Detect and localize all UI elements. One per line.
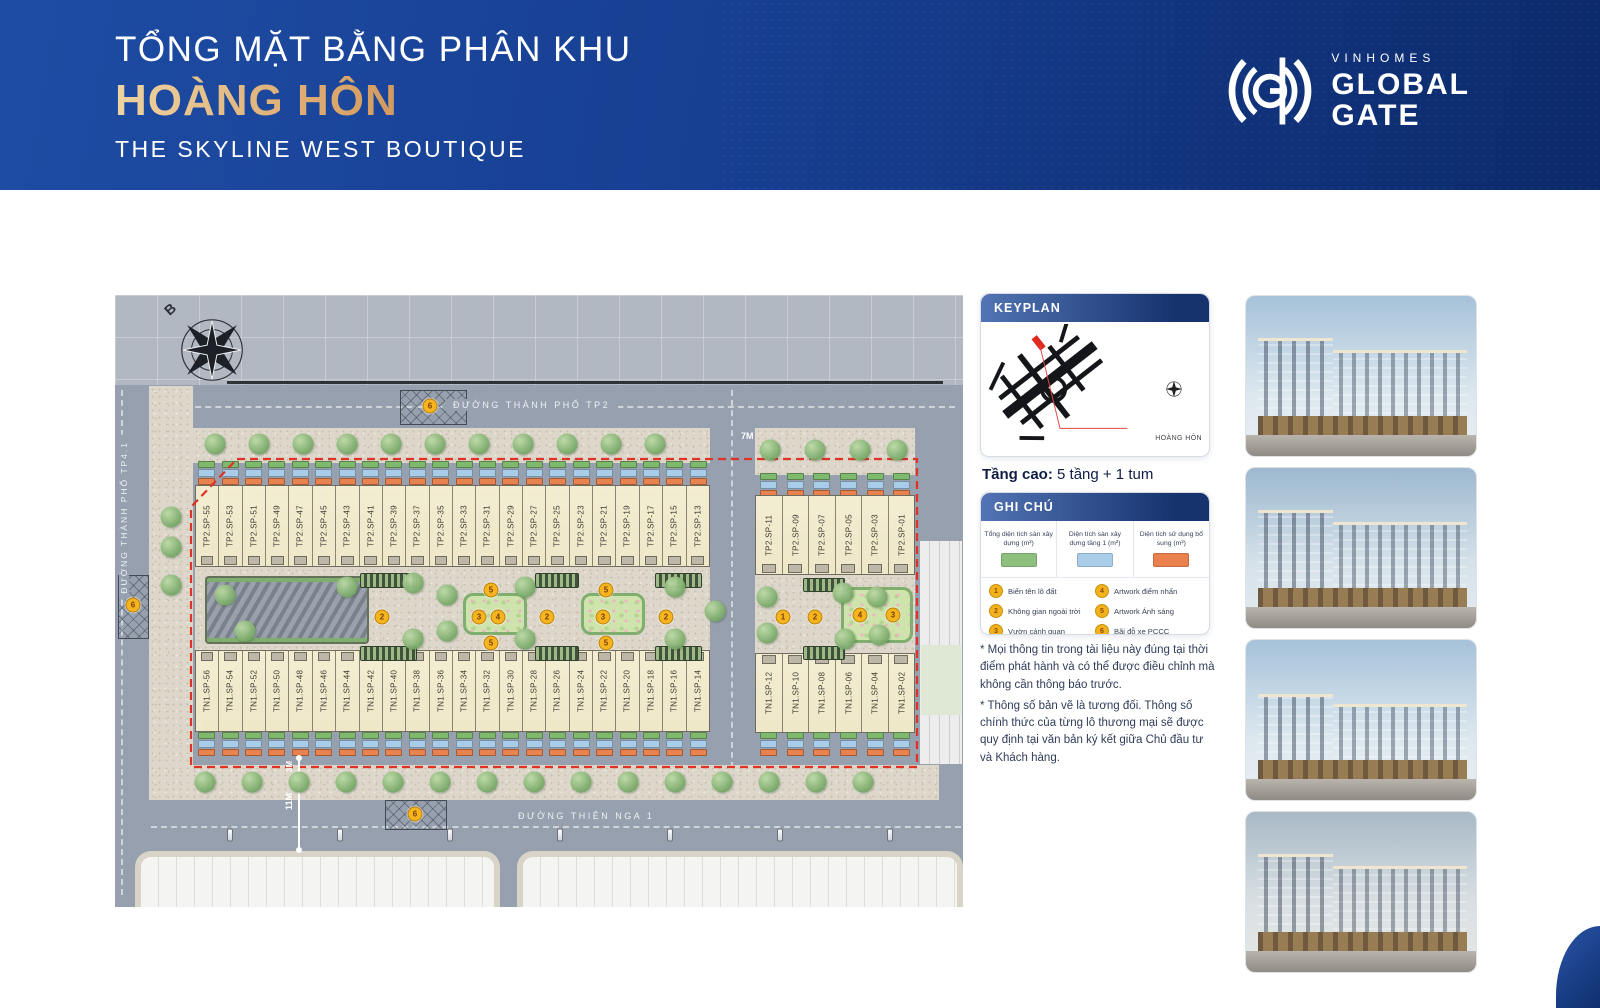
lot-label: TN1.SP-32 xyxy=(476,651,498,731)
lot-cell: TN1.SP-06 xyxy=(836,654,863,732)
lot-info-chip-stack xyxy=(640,732,663,757)
lot-label: TP2.SP-17 xyxy=(640,486,662,566)
lot-info-chip xyxy=(362,469,379,477)
legend-swatch-label: Diện tích sàn xây dựng tầng 1 (m²) xyxy=(1060,531,1129,549)
lot-cell: TN1.SP-56 xyxy=(196,651,219,731)
lot-info-chip xyxy=(456,749,473,757)
lot-info-chip xyxy=(245,732,262,740)
sidewalk-strip xyxy=(755,428,915,475)
lot-info-chip xyxy=(813,473,830,481)
brand-global: GLOBAL xyxy=(1331,69,1470,101)
lot-info-chip xyxy=(456,469,473,477)
lot-info-chip xyxy=(760,732,777,740)
lot-row-bottom-right: TN1.SP-12TN1.SP-10TN1.SP-08TN1.SP-06TN1.… xyxy=(755,653,915,733)
lot-info-chip xyxy=(596,740,613,748)
lot-info-chip-stack xyxy=(687,461,710,486)
lot-row-top-left: TP2.SP-55TP2.SP-53TP2.SP-51TP2.SP-49TP2.… xyxy=(195,485,710,567)
future-lot-block xyxy=(517,851,963,907)
lot-label: TP2.SP-23 xyxy=(570,486,592,566)
lot-label: TP2.SP-11 xyxy=(756,496,782,574)
street-lamp-icon xyxy=(227,829,233,842)
lot-info-chip xyxy=(409,740,426,748)
lot-info-chip xyxy=(813,732,830,740)
title-block: TỔNG MẶT BẰNG PHÂN KHU HOÀNG HÔN THE SKY… xyxy=(115,30,632,163)
lot-info-chip xyxy=(893,749,910,757)
lot-cell: TN1.SP-30 xyxy=(500,651,523,731)
lot-label: TN1.SP-02 xyxy=(889,654,915,732)
lot-label: TP2.SP-35 xyxy=(430,486,452,566)
lot-info-chip xyxy=(432,740,449,748)
lot-info-chip xyxy=(760,481,777,489)
lot-cell: TN1.SP-22 xyxy=(593,651,616,731)
lot-cell: TP2.SP-15 xyxy=(663,486,686,566)
lot-info-chip xyxy=(690,749,707,757)
lot-info-chip-stack xyxy=(663,461,686,486)
lot-info-chip-stack xyxy=(546,732,569,757)
lot-label: TN1.SP-20 xyxy=(616,651,638,731)
lot-info-chip xyxy=(292,461,309,469)
lot-label: TN1.SP-16 xyxy=(663,651,685,731)
lot-cell: TP2.SP-31 xyxy=(476,486,499,566)
legend-item: 5Artwork Ánh sáng xyxy=(1095,604,1201,618)
lot-cell: TP2.SP-27 xyxy=(523,486,546,566)
lot-info-chip xyxy=(339,732,356,740)
legend-item-label: Artwork Ánh sáng xyxy=(1114,607,1174,616)
legend-items: 1Biển tên lô đất2Không gian ngoài trời3V… xyxy=(981,578,1209,635)
lot-info-chip xyxy=(502,461,519,469)
lot-info-chip xyxy=(549,469,566,477)
lot-info-chip xyxy=(385,469,402,477)
lot-cell: TN1.SP-36 xyxy=(430,651,453,731)
lot-info-chip xyxy=(362,732,379,740)
legend-item-label: Bãi đỗ xe PCCC xyxy=(1114,627,1169,636)
lot-cell: TP2.SP-55 xyxy=(196,486,219,566)
lot-info-chip xyxy=(315,732,332,740)
lot-info-chip xyxy=(292,469,309,477)
lot-info-chip xyxy=(787,473,804,481)
legend-title: GHI CHÚ xyxy=(994,500,1054,514)
lot-info-chip xyxy=(292,732,309,740)
lot-info-chip xyxy=(573,740,590,748)
lot-label: TN1.SP-28 xyxy=(523,651,545,731)
lot-info-chip xyxy=(245,749,262,757)
lot-info-chip xyxy=(893,473,910,481)
lot-label: TN1.SP-14 xyxy=(687,651,709,731)
lot-info-chip xyxy=(526,461,543,469)
lot-info-chip-stack xyxy=(265,732,288,757)
brand-vinhomes: VINHOMES xyxy=(1331,51,1470,65)
lot-info-chip xyxy=(315,469,332,477)
lot-info-chip xyxy=(760,740,777,748)
lot-info-chip-stack xyxy=(862,473,889,498)
lot-info-chip-stack xyxy=(755,732,782,757)
corner-decoration xyxy=(1556,926,1600,1008)
lot-info-chip-stack xyxy=(616,461,639,486)
lot-cell: TP2.SP-17 xyxy=(640,486,663,566)
lot-info-chip xyxy=(893,740,910,748)
lot-info-chip xyxy=(760,749,777,757)
dimension-11m: 11M xyxy=(284,793,294,810)
lot-info-chip xyxy=(643,461,660,469)
lot-info-chip xyxy=(573,461,590,469)
lot-cell: TP2.SP-11 xyxy=(756,496,783,574)
lot-info-chip xyxy=(893,732,910,740)
lot-info-chip xyxy=(620,740,637,748)
artwork-plaza xyxy=(205,576,369,644)
lot-cell: TN1.SP-04 xyxy=(862,654,889,732)
lot-cell: TN1.SP-32 xyxy=(476,651,499,731)
lot-label: TN1.SP-18 xyxy=(640,651,662,731)
lot-cell: TP2.SP-33 xyxy=(453,486,476,566)
lot-info-chip xyxy=(787,749,804,757)
lot-info-chip xyxy=(456,461,473,469)
lot-info-chips-row xyxy=(195,733,710,755)
legend-item-label: Biển tên lô đất xyxy=(1008,587,1057,596)
legend-swatch-label: Tổng diện tích sàn xây dựng (m²) xyxy=(984,531,1053,549)
lot-info-chip xyxy=(690,732,707,740)
lot-info-chip-stack xyxy=(687,732,710,757)
arcade-element xyxy=(1258,760,1467,781)
lot-label: TP2.SP-03 xyxy=(862,496,888,574)
dimension-line xyxy=(298,758,300,850)
lot-info-chip xyxy=(479,732,496,740)
lot-cell: TN1.SP-44 xyxy=(336,651,359,731)
lot-info-chip xyxy=(549,740,566,748)
lot-cell: TN1.SP-12 xyxy=(756,654,783,732)
lot-info-chip xyxy=(666,732,683,740)
lot-cell: TN1.SP-34 xyxy=(453,651,476,731)
lot-label: TP2.SP-41 xyxy=(360,486,382,566)
lot-info-chip-stack xyxy=(570,732,593,757)
lot-cell: TP2.SP-07 xyxy=(809,496,836,574)
keyplan-map: HOÀNG HÔN xyxy=(981,322,1209,456)
lot-info-chip xyxy=(787,481,804,489)
lot-row-top-right: TP2.SP-11TP2.SP-09TP2.SP-07TP2.SP-05TP2.… xyxy=(755,495,915,575)
lot-info-chip-stack xyxy=(335,732,358,757)
lot-info-chip-stack xyxy=(782,732,809,757)
lot-info-chip xyxy=(596,469,613,477)
lot-label: TP2.SP-51 xyxy=(243,486,265,566)
lot-info-chip xyxy=(867,732,884,740)
lot-cell: TP2.SP-41 xyxy=(360,486,383,566)
lot-cell: TP2.SP-03 xyxy=(862,496,889,574)
lot-info-chip xyxy=(385,740,402,748)
lot-info-chip xyxy=(409,749,426,757)
lot-info-chip xyxy=(502,740,519,748)
lot-cell: TN1.SP-48 xyxy=(289,651,312,731)
legend-item-label: Không gian ngoài trời xyxy=(1008,607,1081,616)
lot-info-chip xyxy=(502,732,519,740)
page-title: TỔNG MẶT BẰNG PHÂN KHU xyxy=(115,30,632,70)
sidewalk-strip xyxy=(193,428,710,463)
lot-label: TP2.SP-21 xyxy=(593,486,615,566)
subzone-title: HOÀNG HÔN xyxy=(115,76,632,126)
lot-label: TN1.SP-42 xyxy=(360,651,382,731)
lot-info-chip-stack xyxy=(808,473,835,498)
legend-item: 6Bãi đỗ xe PCCC xyxy=(1095,624,1201,635)
road-element xyxy=(1246,435,1476,456)
lot-info-chip-stack xyxy=(452,732,475,757)
lot-label: TP2.SP-49 xyxy=(266,486,288,566)
lot-info-chip xyxy=(479,461,496,469)
fire-parking-area xyxy=(385,800,447,830)
lot-info-chip xyxy=(813,749,830,757)
lot-info-chip xyxy=(479,469,496,477)
keyplan-map-graphic xyxy=(985,324,1187,450)
lot-info-chip xyxy=(432,469,449,477)
lot-cell: TN1.SP-50 xyxy=(266,651,289,731)
globalgate-logo-icon xyxy=(1227,48,1313,134)
lot-label: TN1.SP-52 xyxy=(243,651,265,731)
lot-info-chip-stack xyxy=(359,732,382,757)
project-subtitle: THE SKYLINE WEST BOUTIQUE xyxy=(115,136,632,163)
street-lamp-icon xyxy=(557,829,563,842)
building-render-2 xyxy=(1245,467,1477,629)
lot-cell: TP2.SP-47 xyxy=(289,486,312,566)
legend-item-number: 2 xyxy=(989,604,1003,618)
arcade-element xyxy=(1258,416,1467,437)
lot-cell: TP2.SP-45 xyxy=(313,486,336,566)
lot-label: TP2.SP-45 xyxy=(313,486,335,566)
legend-swatch-color xyxy=(1001,553,1037,567)
keyplan-card: KEYPLAN xyxy=(980,293,1210,457)
lot-info-chip-stack xyxy=(289,732,312,757)
lot-info-chip xyxy=(222,740,239,748)
legend-column: 1Biển tên lô đất2Không gian ngoài trời3V… xyxy=(989,584,1095,635)
lot-label: TN1.SP-48 xyxy=(289,651,311,731)
lot-label: TP2.SP-29 xyxy=(500,486,522,566)
lot-info-chip xyxy=(222,461,239,469)
lot-info-chip xyxy=(198,740,215,748)
legend-swatch-label: Diện tích sử dụng bổ sung (m²) xyxy=(1137,531,1206,549)
lot-info-chip xyxy=(643,740,660,748)
lot-label: TN1.SP-10 xyxy=(783,654,809,732)
lot-info-chip xyxy=(198,732,215,740)
lot-info-chip xyxy=(690,740,707,748)
lot-info-chip-stack xyxy=(546,461,569,486)
keyplan-compass-icon xyxy=(1165,380,1183,398)
street-lamp-icon xyxy=(667,829,673,842)
lot-cell: TN1.SP-18 xyxy=(640,651,663,731)
lot-label: TN1.SP-46 xyxy=(313,651,335,731)
legend-column: 4Artwork điểm nhấn5Artwork Ánh sáng6Bãi … xyxy=(1095,584,1201,635)
lot-info-chip-stack xyxy=(312,461,335,486)
legend-item: 3Vườn cảnh quan xyxy=(989,624,1095,635)
lot-label: TP2.SP-37 xyxy=(406,486,428,566)
lot-cell: TN1.SP-28 xyxy=(523,651,546,731)
lot-info-chip-stack xyxy=(663,732,686,757)
lot-cell: TN1.SP-52 xyxy=(243,651,266,731)
lot-info-chip xyxy=(666,749,683,757)
lot-cell: TN1.SP-38 xyxy=(406,651,429,731)
lot-info-chip xyxy=(409,732,426,740)
lot-info-chip xyxy=(867,481,884,489)
lot-info-chip xyxy=(690,461,707,469)
sidewalk-strip xyxy=(149,765,939,800)
lot-label: TN1.SP-24 xyxy=(570,651,592,731)
lot-info-chip xyxy=(787,732,804,740)
lot-info-chip xyxy=(432,732,449,740)
lot-info-chip-stack xyxy=(499,732,522,757)
lot-info-chip xyxy=(867,473,884,481)
lot-cell: TN1.SP-54 xyxy=(219,651,242,731)
lot-info-chip-stack xyxy=(888,473,915,498)
lot-info-chip xyxy=(643,732,660,740)
dimension-3m: 3M xyxy=(285,761,294,772)
legend-item-label: Artwork điểm nhấn xyxy=(1114,587,1177,596)
lot-info-chip-stack xyxy=(593,732,616,757)
floor-count-value: 5 tầng + 1 tum xyxy=(1053,466,1153,483)
lot-label: TN1.SP-08 xyxy=(809,654,835,732)
lot-label: TN1.SP-06 xyxy=(836,654,862,732)
lot-info-chip xyxy=(198,469,215,477)
lot-info-chip xyxy=(690,469,707,477)
lot-info-chip-stack xyxy=(406,461,429,486)
lot-label: TP2.SP-27 xyxy=(523,486,545,566)
lot-cell: TN1.SP-10 xyxy=(783,654,810,732)
lot-label: TP2.SP-09 xyxy=(783,496,809,574)
lot-info-chip xyxy=(362,749,379,757)
future-lot-block xyxy=(135,851,500,907)
lot-info-chip xyxy=(479,740,496,748)
lot-info-chip xyxy=(222,732,239,740)
lot-cell: TN1.SP-42 xyxy=(360,651,383,731)
lot-info-chip xyxy=(526,749,543,757)
lot-info-chip-stack xyxy=(242,461,265,486)
lot-cell: TN1.SP-14 xyxy=(687,651,709,731)
lot-label: TN1.SP-56 xyxy=(196,651,218,731)
lot-info-chip xyxy=(362,461,379,469)
legend-item-number: 6 xyxy=(1095,624,1109,635)
keyplan-callout-label: HOÀNG HÔN xyxy=(1155,435,1202,442)
lot-info-chip xyxy=(245,461,262,469)
lot-label: TN1.SP-22 xyxy=(593,651,615,731)
lot-info-chip xyxy=(573,749,590,757)
lot-info-chip xyxy=(813,740,830,748)
lot-info-chip-stack xyxy=(218,461,241,486)
lot-info-chip xyxy=(432,461,449,469)
legend-item-number: 4 xyxy=(1095,584,1109,598)
street-label-left: ĐƯỜNG THÀNH PHỐ TP4.1 xyxy=(119,435,129,600)
lot-info-chip xyxy=(643,749,660,757)
lot-cell: TN1.SP-16 xyxy=(663,651,686,731)
arcade-element xyxy=(1258,932,1467,953)
lot-info-chip xyxy=(385,732,402,740)
legend-item-number: 5 xyxy=(1095,604,1109,618)
lot-info-chip-stack xyxy=(382,461,405,486)
lot-info-chip xyxy=(813,481,830,489)
road-element xyxy=(1246,951,1476,972)
legend-item-number: 3 xyxy=(989,624,1003,635)
sidewalk-strip xyxy=(149,386,193,766)
legend-swatch-row: Tổng diện tích sàn xây dựng (m²)Diện tíc… xyxy=(981,521,1209,578)
lot-info-chip-stack xyxy=(523,732,546,757)
lot-info-chips-row xyxy=(755,734,915,754)
lot-label: TP2.SP-31 xyxy=(476,486,498,566)
lot-info-chip xyxy=(292,740,309,748)
lot-label: TP2.SP-07 xyxy=(809,496,835,574)
lot-info-chip xyxy=(409,469,426,477)
street-lamp-icon xyxy=(887,829,893,842)
lot-label: TP2.SP-01 xyxy=(889,496,915,574)
lot-cell: TP2.SP-39 xyxy=(383,486,406,566)
lot-info-chip-stack xyxy=(429,461,452,486)
lot-label: TN1.SP-54 xyxy=(219,651,241,731)
lot-info-chip xyxy=(245,740,262,748)
lot-label: TN1.SP-04 xyxy=(862,654,888,732)
street-lamp-icon xyxy=(337,829,343,842)
lot-info-chip xyxy=(222,749,239,757)
street-label-bottom: ĐƯỜNG THIÊN NGA 1 xyxy=(510,810,662,822)
lot-info-chip-stack xyxy=(499,461,522,486)
lot-info-chip xyxy=(840,473,857,481)
lot-info-chip xyxy=(315,461,332,469)
adjacent-green-patch xyxy=(921,645,961,715)
header-band: TỔNG MẶT BẰNG PHÂN KHU HOÀNG HÔN THE SKY… xyxy=(0,0,1600,190)
lot-info-chip-stack xyxy=(429,732,452,757)
lot-info-chip xyxy=(315,740,332,748)
lot-label: TP2.SP-47 xyxy=(289,486,311,566)
building-render-4 xyxy=(1245,811,1477,973)
lot-info-chip xyxy=(339,461,356,469)
lot-info-chip xyxy=(549,749,566,757)
lot-info-chip xyxy=(840,732,857,740)
lot-info-chip-stack xyxy=(523,461,546,486)
lot-info-chip xyxy=(643,469,660,477)
lot-info-chip-stack xyxy=(289,461,312,486)
lot-info-chip xyxy=(268,740,285,748)
brand-text: VINHOMES GLOBAL GATE xyxy=(1331,51,1470,132)
road-element xyxy=(1246,607,1476,628)
lot-label: TN1.SP-30 xyxy=(500,651,522,731)
lot-label: TN1.SP-38 xyxy=(406,651,428,731)
lot-info-chip xyxy=(573,469,590,477)
lot-info-chip-stack xyxy=(862,732,889,757)
legend-swatch: Tổng diện tích sàn xây dựng (m²) xyxy=(981,521,1057,577)
brochure-page: TỔNG MẶT BẰNG PHÂN KHU HOÀNG HÔN THE SKY… xyxy=(0,0,1600,1008)
lot-info-chip-stack xyxy=(570,461,593,486)
lot-info-chip-stack xyxy=(195,461,218,486)
lot-info-chip xyxy=(409,461,426,469)
lot-cell: TN1.SP-26 xyxy=(546,651,569,731)
lot-label: TN1.SP-36 xyxy=(430,651,452,731)
lot-info-chip-stack xyxy=(593,461,616,486)
lot-info-chip-stack xyxy=(195,732,218,757)
legend-swatch: Diện tích sử dụng bổ sung (m²) xyxy=(1134,521,1209,577)
lot-info-chip xyxy=(222,469,239,477)
lot-info-chip-stack xyxy=(406,732,429,757)
pocket-garden xyxy=(755,575,915,653)
legend-item-label: Vườn cảnh quan xyxy=(1008,627,1065,636)
lot-info-chip xyxy=(620,461,637,469)
lot-info-chip xyxy=(339,469,356,477)
lot-info-chip-stack xyxy=(312,732,335,757)
lot-info-chip xyxy=(245,469,262,477)
lot-info-chip xyxy=(526,740,543,748)
lot-info-chips-row xyxy=(755,475,915,495)
lot-info-chip xyxy=(840,481,857,489)
lot-info-chip-stack xyxy=(835,473,862,498)
lot-cell: TP2.SP-37 xyxy=(406,486,429,566)
lot-info-chip xyxy=(620,469,637,477)
lot-info-chip xyxy=(620,749,637,757)
lot-cell: TN1.SP-46 xyxy=(313,651,336,731)
legend-swatch-color xyxy=(1077,553,1113,567)
lot-info-chip xyxy=(620,732,637,740)
lot-info-chip-stack xyxy=(382,732,405,757)
lot-info-chip xyxy=(666,469,683,477)
brand-gate: GATE xyxy=(1331,100,1470,132)
